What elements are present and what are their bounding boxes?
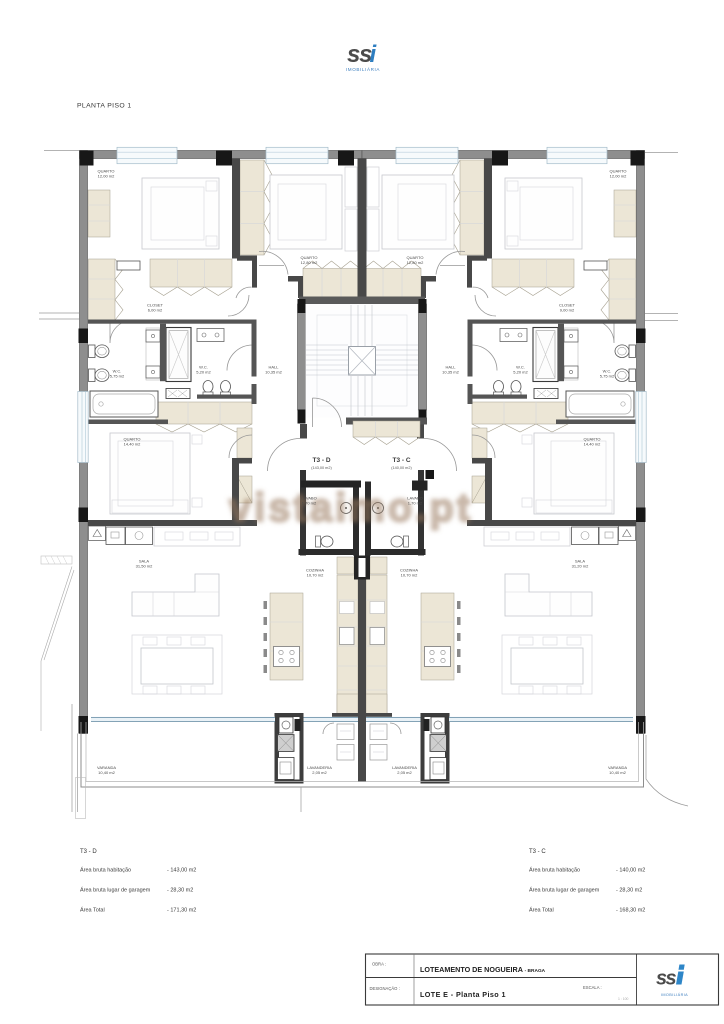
svg-text:10,35 m2: 10,35 m2: [442, 370, 459, 375]
svg-text:1,70 m2: 1,70 m2: [408, 501, 423, 506]
svg-text:12,00 m2: 12,00 m2: [610, 174, 627, 179]
svg-text:OBRA :: OBRA :: [372, 962, 386, 967]
svg-text:31,20 m2: 31,20 m2: [572, 564, 589, 569]
svg-text:IMOBILIÁRIA: IMOBILIÁRIA: [346, 66, 381, 72]
svg-text:1 : 100: 1 : 100: [618, 997, 628, 1001]
svg-text:2,05 m2: 2,05 m2: [397, 770, 412, 775]
svg-text:12,00 m2: 12,00 m2: [98, 174, 115, 179]
svg-text:Área bruta habitação: Área bruta habitação: [529, 867, 580, 874]
svg-text:1,70 m2: 1,70 m2: [302, 501, 317, 506]
svg-text:10,70 m2: 10,70 m2: [401, 573, 418, 578]
svg-text:T3 - C: T3 - C: [392, 457, 410, 464]
svg-text:31,50 m2: 31,50 m2: [136, 564, 153, 569]
svg-text:5,20 m2: 5,20 m2: [513, 370, 528, 375]
svg-text:10,40 m2: 10,40 m2: [609, 770, 626, 775]
svg-text:LOTE E - Planta Piso 1: LOTE E - Planta Piso 1: [420, 990, 506, 999]
svg-text:(140,00 m2): (140,00 m2): [391, 466, 412, 470]
svg-text:IMOBILIÁRIA: IMOBILIÁRIA: [661, 993, 688, 997]
svg-text:Área Total: Área Total: [80, 907, 105, 914]
svg-text:- 28,30 m2: - 28,30 m2: [616, 888, 642, 894]
svg-text:5,75 m2: 5,75 m2: [600, 374, 615, 379]
svg-text:- 168,30 m2: - 168,30 m2: [616, 908, 645, 914]
svg-text:- 140,00 m2: - 140,00 m2: [616, 868, 645, 874]
svg-text:T3 - D: T3 - D: [312, 457, 330, 464]
svg-text:12,80 m2: 12,80 m2: [407, 260, 424, 265]
svg-text:Área bruta lugar de garagem: Área bruta lugar de garagem: [80, 887, 151, 894]
svg-text:10,35 m2: 10,35 m2: [265, 370, 282, 375]
svg-text:Área bruta habitação: Área bruta habitação: [80, 867, 131, 874]
svg-text:DESIGNAÇÃO :: DESIGNAÇÃO :: [370, 986, 400, 991]
svg-text:9,00 m2: 9,00 m2: [560, 308, 575, 313]
svg-text:2,05 m2: 2,05 m2: [312, 770, 327, 775]
svg-text:ss: ss: [656, 968, 677, 990]
svg-text:T3 - C: T3 - C: [529, 849, 546, 855]
svg-text:T3 - D: T3 - D: [80, 849, 97, 855]
svg-text:- 171,30 m2: - 171,30 m2: [167, 908, 196, 914]
svg-text:Área bruta lugar de garagem: Área bruta lugar de garagem: [529, 887, 600, 894]
svg-text:ESCALA :: ESCALA :: [583, 985, 602, 990]
svg-text:5,20 m2: 5,20 m2: [196, 370, 211, 375]
svg-text:- 143,00 m2: - 143,00 m2: [167, 868, 196, 874]
svg-text:(143,00 m2): (143,00 m2): [311, 466, 332, 470]
svg-text:Área Total: Área Total: [529, 907, 554, 914]
svg-text:ss: ss: [347, 41, 372, 68]
svg-text:10,70 m2: 10,70 m2: [307, 573, 324, 578]
svg-text:vistaimo.pt: vistaimo.pt: [229, 486, 473, 530]
svg-text:14,40 m2: 14,40 m2: [124, 442, 141, 447]
svg-text:12,80 m2: 12,80 m2: [301, 260, 318, 265]
svg-text:14,40 m2: 14,40 m2: [584, 442, 601, 447]
svg-text:10,40 m2: 10,40 m2: [98, 770, 115, 775]
svg-text:6,00 m2: 6,00 m2: [148, 308, 163, 313]
svg-text:PLANTA PISO 1: PLANTA PISO 1: [77, 103, 132, 110]
svg-text:5,75 m2: 5,75 m2: [110, 374, 125, 379]
svg-text:- 28,30 m2: - 28,30 m2: [167, 888, 193, 894]
